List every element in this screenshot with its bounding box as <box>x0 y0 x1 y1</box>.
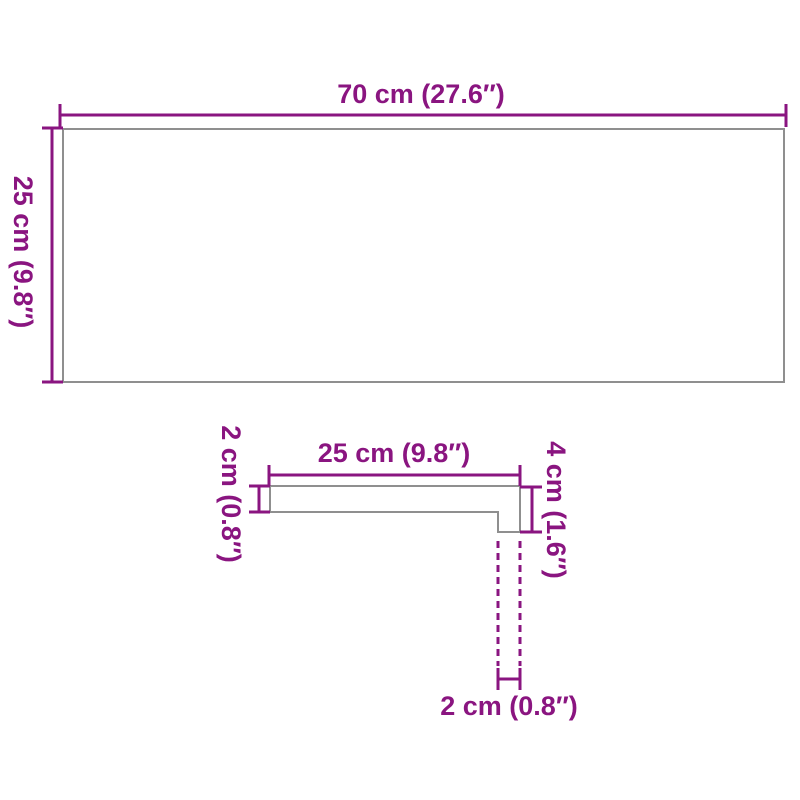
profile-thickness-label: 2 cm (0.8″) <box>216 425 246 563</box>
profile-outline <box>270 486 520 532</box>
top-view: 70 cm (27.6″) 25 cm (9.8″) <box>8 79 786 382</box>
profile-edge-height-label: 4 cm (1.6″) <box>541 441 571 579</box>
profile-length-label: 25 cm (9.8″) <box>318 438 471 468</box>
top-width-label: 70 cm (27.6″) <box>337 79 505 109</box>
top-view-panel <box>63 129 784 382</box>
top-height-label: 25 cm (9.8″) <box>8 176 38 329</box>
dimension-diagram: 70 cm (27.6″) 25 cm (9.8″) 25 cm (9.8″) … <box>0 0 800 800</box>
profile-view: 25 cm (9.8″) 2 cm (0.8″) 4 cm (1.6″) 2 c… <box>216 425 578 721</box>
dimension-diagram-canvas: 70 cm (27.6″) 25 cm (9.8″) 25 cm (9.8″) … <box>0 0 800 800</box>
profile-nose-width-label: 2 cm (0.8″) <box>440 691 578 721</box>
